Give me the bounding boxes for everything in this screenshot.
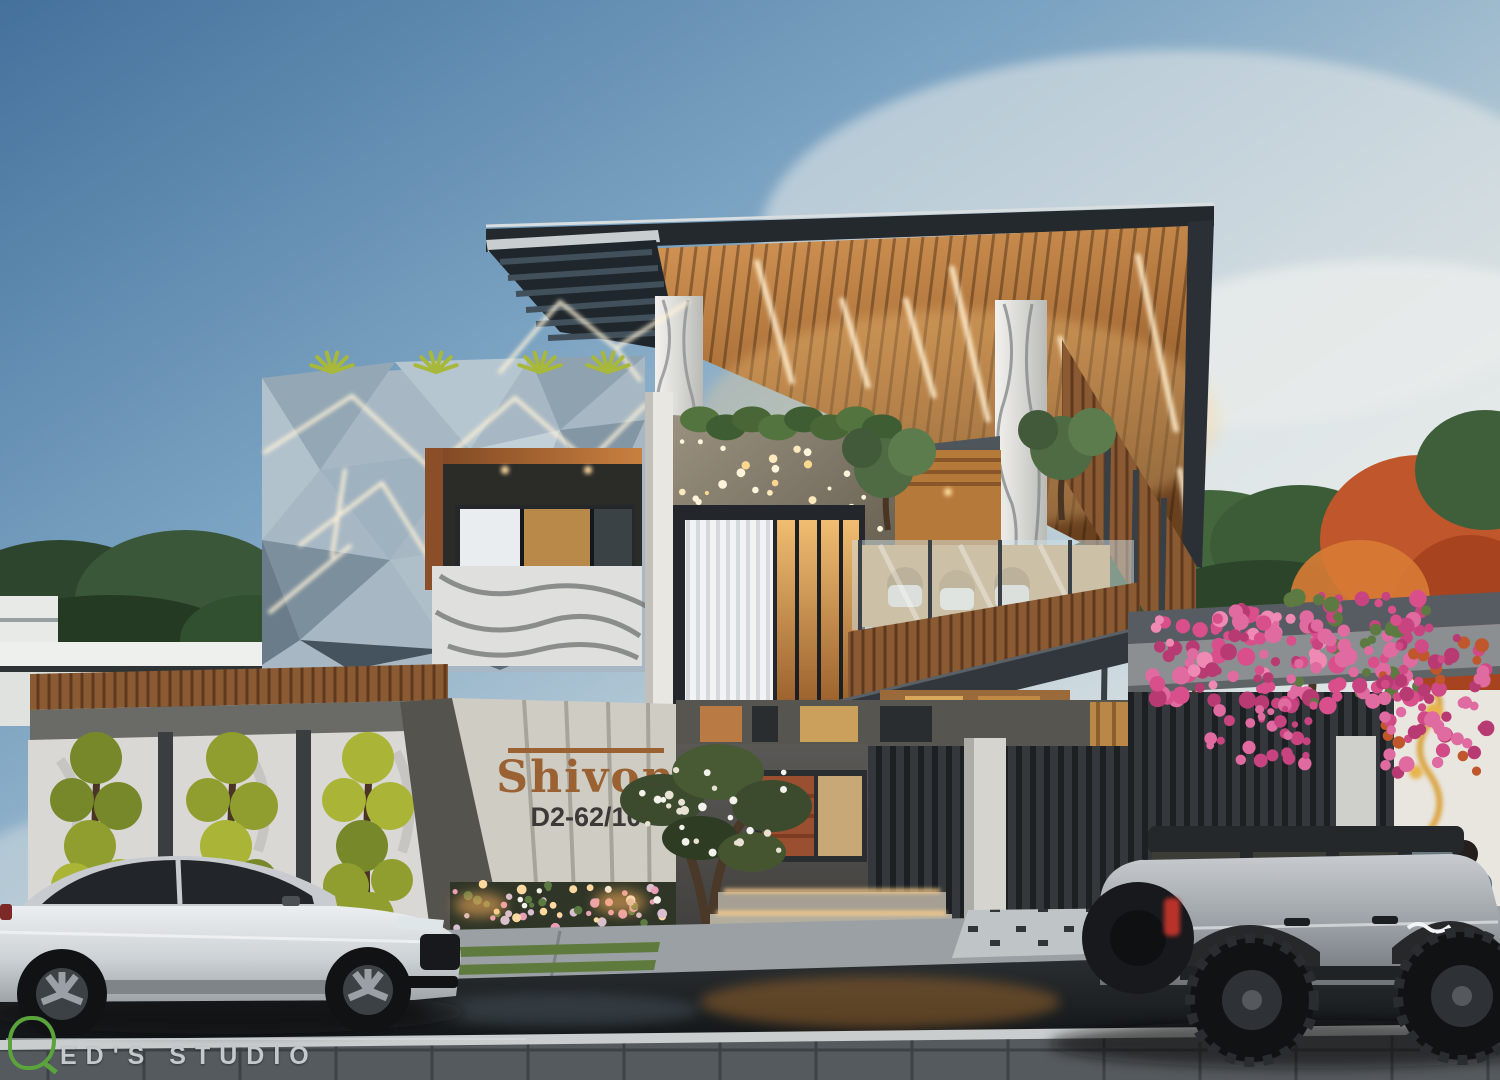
bed-uplight — [594, 890, 646, 914]
suv-door-handle — [1284, 918, 1310, 926]
sedan-grille — [420, 934, 460, 970]
studio-watermark: Q ED'S STUDIO — [6, 1024, 566, 1074]
sedan-b-pillar — [178, 860, 180, 904]
suv-front-wheel — [1398, 932, 1500, 1060]
bed-uplight — [454, 893, 506, 917]
window-soffit — [425, 448, 642, 464]
studio-logo-q: Q — [8, 1016, 56, 1070]
suv-spare-hub — [1110, 910, 1166, 966]
neighbour-roof-slab — [0, 642, 272, 668]
suv-rear-wheel — [1190, 938, 1314, 1062]
road-warm-reflection — [700, 976, 1060, 1028]
watermark-line — [6, 1038, 526, 1040]
sedan-front-wheel — [325, 947, 411, 1033]
pendant-light — [944, 488, 952, 496]
sedan-taillight — [0, 904, 12, 920]
suv-roof — [1148, 826, 1464, 854]
downlight — [501, 466, 509, 474]
suv-taillight — [1164, 898, 1180, 936]
suv-door-handle — [1372, 916, 1398, 924]
sedan-mirror — [282, 896, 300, 906]
downlight — [584, 466, 592, 474]
mailbox-wood-panel — [818, 776, 862, 856]
scene-canvas: Shivon D2-62/10 — [0, 0, 1500, 1080]
architectural-render: Shivon D2-62/10 — [0, 0, 1500, 1080]
sign-pylon: Shivon D2-62/10 — [400, 698, 680, 946]
studio-name: ED'S STUDIO — [60, 1042, 318, 1071]
